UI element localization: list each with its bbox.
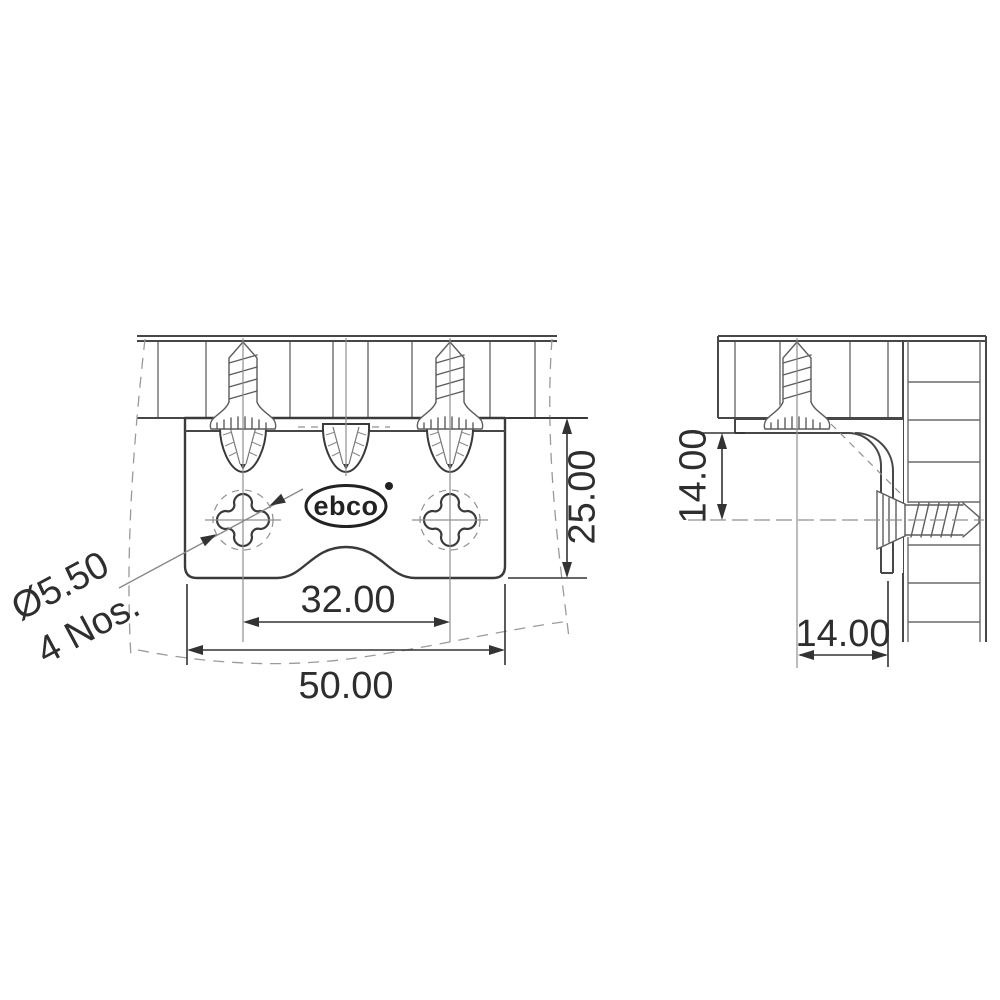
dim-height-25: 25.00	[508, 418, 603, 578]
dim-side-vertical-label: 14.00	[672, 428, 714, 523]
drawing-page: ebco 25.00 32.00 50.00	[0, 0, 1000, 1000]
front-view: ebco 25.00 32.00 50.00	[5, 336, 603, 707]
side-view: 14.00 14.00	[672, 336, 986, 668]
dim-side-horizontal-label: 14.00	[795, 613, 890, 655]
side-top-panel	[718, 336, 986, 418]
dim-hole-spacing-32: 32.00	[243, 579, 450, 627]
side-vertical-panel	[903, 336, 986, 642]
dim-height-label: 25.00	[561, 449, 603, 544]
logo-registered-dot	[385, 482, 393, 490]
bracket-technical-drawing: ebco 25.00 32.00 50.00	[0, 0, 1000, 1000]
dim-side-vertical-14: 14.00	[672, 428, 745, 523]
dim-side-horizontal-14: 14.00	[795, 581, 890, 667]
ebco-logo-text: ebco	[313, 491, 378, 521]
dim-hole-spacing-label: 32.00	[300, 579, 395, 621]
dim-width-label: 50.00	[298, 665, 393, 707]
